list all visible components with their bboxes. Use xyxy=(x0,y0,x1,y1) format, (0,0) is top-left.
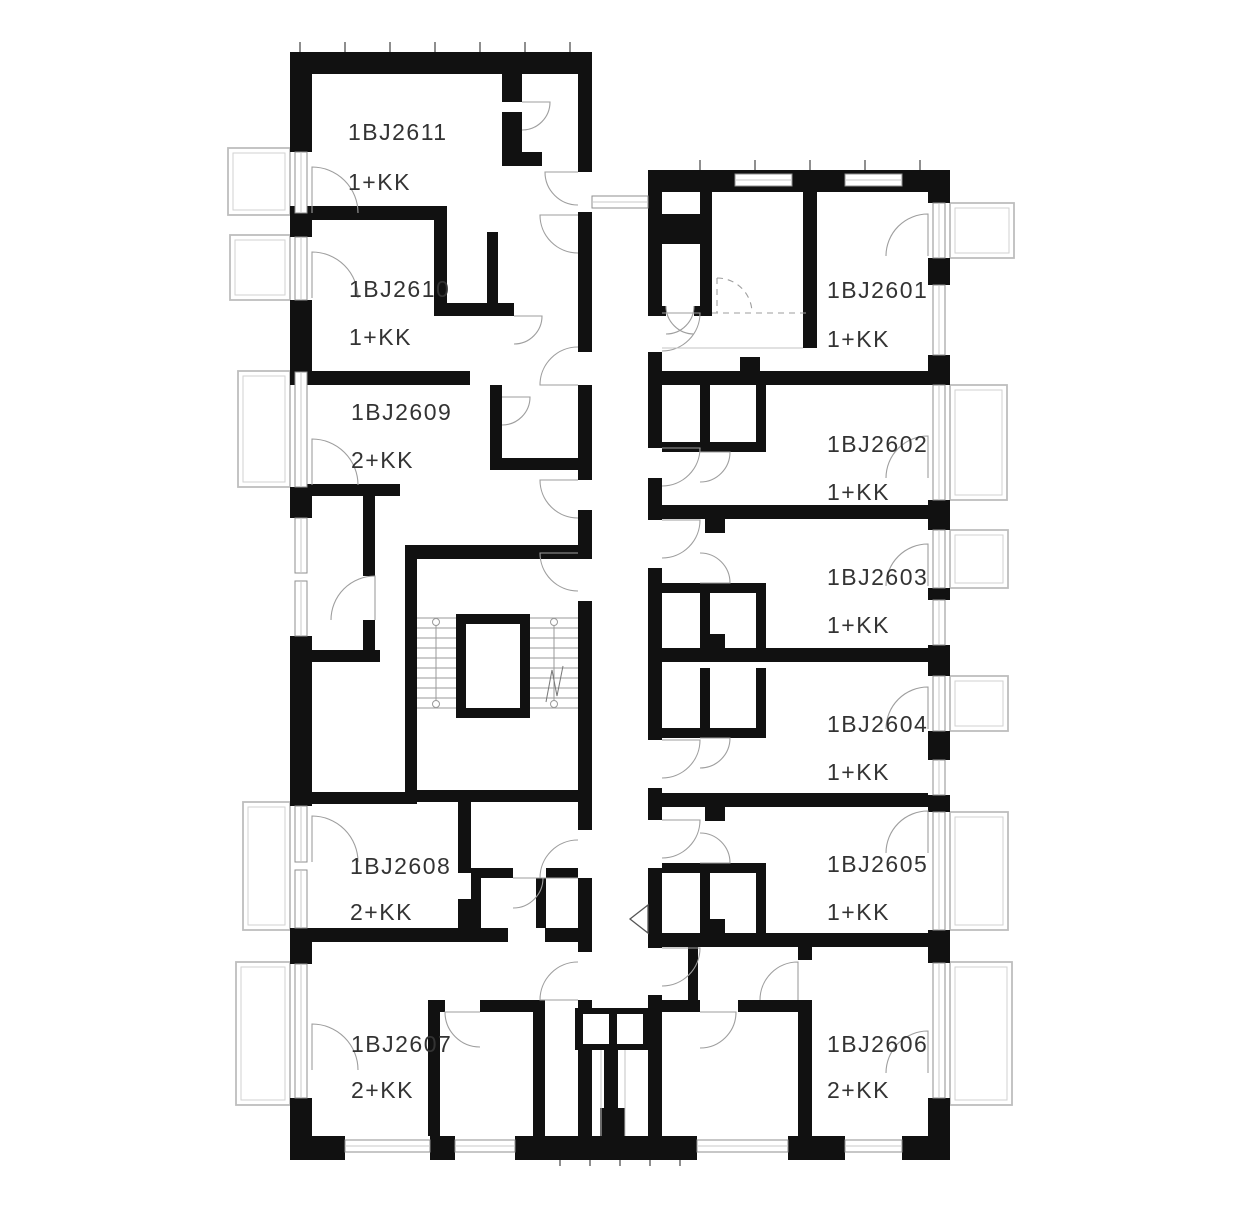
balcony xyxy=(238,371,290,487)
door-arc xyxy=(331,576,375,620)
door-arc xyxy=(662,448,700,486)
balcony xyxy=(950,812,1008,930)
unit-label-1bj2605: 1BJ2605 1+KK xyxy=(827,851,928,925)
door-arc xyxy=(662,740,700,778)
door-arc xyxy=(700,833,730,863)
interior-walls-left-wing xyxy=(290,52,578,1136)
unit-label-1bj2609: 1BJ2609 2+KK xyxy=(351,399,452,473)
door-arc xyxy=(662,520,700,558)
door-arc xyxy=(700,738,730,768)
unit-id: 1BJ2606 xyxy=(827,1031,928,1057)
balcony xyxy=(950,203,1014,258)
door-arc xyxy=(514,316,542,344)
unit-type: 2+KK xyxy=(351,1077,414,1103)
door-arc xyxy=(540,962,578,1000)
entrance-arrow-icon xyxy=(630,905,648,933)
unit-type: 2+KK xyxy=(827,1077,890,1103)
unit-type: 1+KK xyxy=(827,326,890,352)
unit-type: 1+KK xyxy=(348,169,411,195)
unit-type: 1+KK xyxy=(827,479,890,505)
unit-id: 1BJ2611 xyxy=(348,119,448,145)
door-arc xyxy=(662,820,700,858)
unit-type: 1+KK xyxy=(827,612,890,638)
unit-id: 1BJ2601 xyxy=(827,277,928,303)
unit-label-1bj2611: 1BJ2611 1+KK xyxy=(348,119,448,195)
unit-id: 1BJ2603 xyxy=(827,564,928,590)
door-arc xyxy=(540,347,578,385)
unit-type: 2+KK xyxy=(350,899,413,925)
unit-type: 1+KK xyxy=(827,759,890,785)
door-arc xyxy=(886,811,928,853)
balcony xyxy=(228,148,290,215)
unit-id: 1BJ2610 xyxy=(349,276,450,302)
door-arc xyxy=(522,102,550,130)
unit-id: 1BJ2607 xyxy=(351,1031,452,1057)
unit-type: 2+KK xyxy=(351,447,414,473)
elevator-shaft xyxy=(456,614,530,718)
door-arc xyxy=(700,1012,736,1048)
door-arc xyxy=(700,553,730,583)
door-arc xyxy=(886,214,928,256)
balcony xyxy=(950,676,1008,731)
unit-id: 1BJ2609 xyxy=(351,399,452,425)
balcony xyxy=(950,530,1008,588)
door-arc xyxy=(545,172,578,205)
unit-id: 1BJ2605 xyxy=(827,851,928,877)
door-arc xyxy=(662,313,700,351)
door-arc xyxy=(700,452,730,482)
balcony xyxy=(950,385,1007,500)
door-arc xyxy=(540,480,578,518)
balcony xyxy=(236,962,290,1105)
unit-label-1bj2606: 1BJ2606 2+KK xyxy=(827,1031,928,1103)
balcony xyxy=(950,962,1012,1105)
unit-label-1bj2603: 1BJ2603 1+KK xyxy=(827,564,928,638)
floor-plan-canvas: 1BJ2611 1+KK 1BJ2610 1+KK 1BJ2609 2+KK 1… xyxy=(0,0,1251,1230)
unit-id: 1BJ2608 xyxy=(350,853,451,879)
door-arc xyxy=(502,397,530,425)
unit-type: 1+KK xyxy=(349,324,412,350)
unit-id: 1BJ2604 xyxy=(827,711,928,737)
door-arc xyxy=(760,962,798,1000)
door-arc xyxy=(540,215,578,253)
unit-label-1bj2608: 1BJ2608 2+KK xyxy=(350,853,451,925)
unit-label-1bj2601: 1BJ2601 1+KK xyxy=(827,277,928,352)
unit-label-1bj2604: 1BJ2604 1+KK xyxy=(827,711,928,785)
unit-id: 1BJ2602 xyxy=(827,431,928,457)
unit-type: 1+KK xyxy=(827,899,890,925)
balcony xyxy=(243,802,290,930)
balcony xyxy=(230,235,290,300)
floor-plan-drawing: 1BJ2611 1+KK 1BJ2610 1+KK 1BJ2609 2+KK 1… xyxy=(0,0,1251,1230)
unit-label-1bj2602: 1BJ2602 1+KK xyxy=(827,431,928,505)
